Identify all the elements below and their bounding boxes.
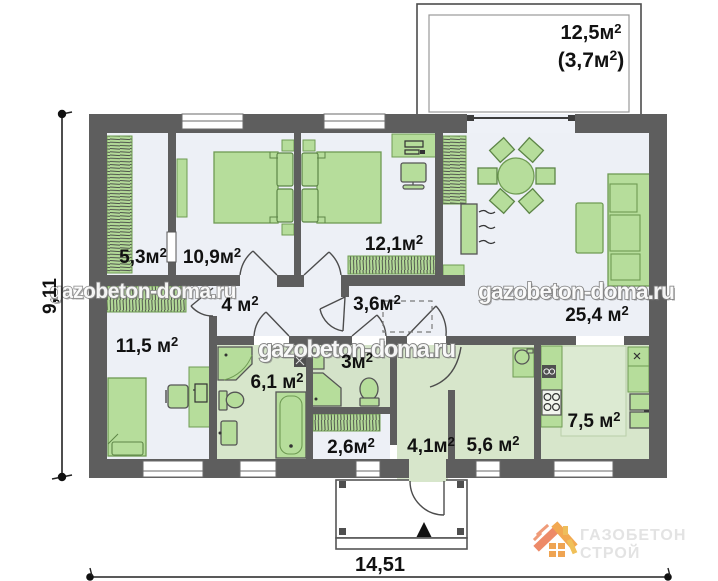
svg-text:25,4 м2: 25,4 м2: [565, 303, 629, 326]
svg-text:ГАЗОБЕТОН: ГАЗОБЕТОН: [580, 527, 686, 544]
svg-text:СТРОЙ: СТРОЙ: [580, 543, 640, 562]
svg-text:6,1 м2: 6,1 м2: [251, 370, 304, 393]
svg-text:7,5 м2: 7,5 м2: [568, 409, 621, 432]
svg-text:9,11: 9,11: [40, 278, 61, 314]
svg-text:14,51: 14,51: [355, 554, 405, 576]
svg-text:gazobeton-doma.ru: gazobeton-doma.ru: [50, 280, 237, 303]
svg-text:12,5м2: 12,5м2: [561, 21, 622, 44]
svg-text:10,9м2: 10,9м2: [183, 245, 241, 268]
svg-text:11,5 м2: 11,5 м2: [116, 334, 179, 357]
svg-text:5,6 м2: 5,6 м2: [467, 433, 520, 456]
svg-text:gazobeton-doma.ru: gazobeton-doma.ru: [478, 278, 675, 304]
svg-text:12,1м2: 12,1м2: [365, 232, 423, 255]
